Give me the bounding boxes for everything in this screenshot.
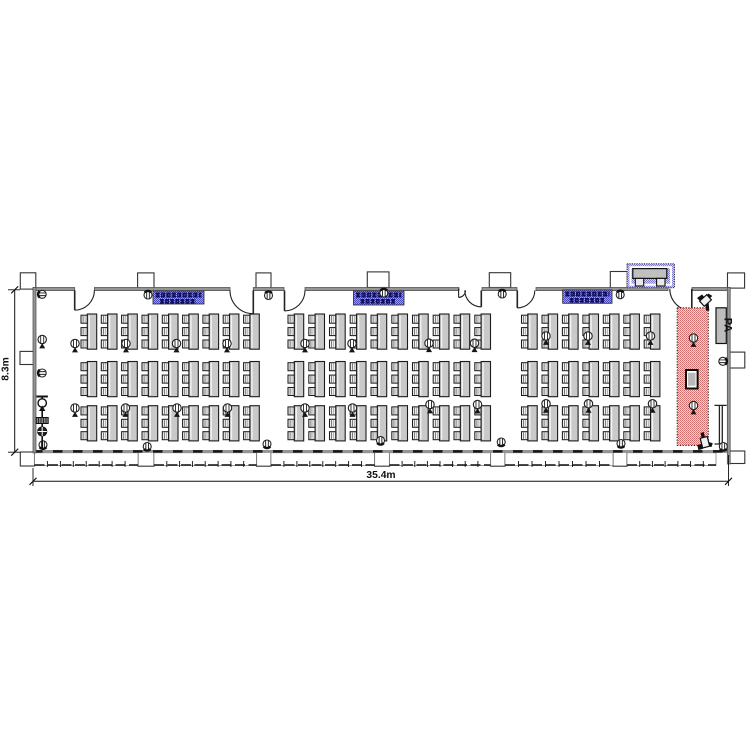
svg-text:PA: PA [722,318,734,333]
svg-text:8.3m: 8.3m [1,357,12,380]
svg-text:35.4m: 35.4m [366,470,395,481]
